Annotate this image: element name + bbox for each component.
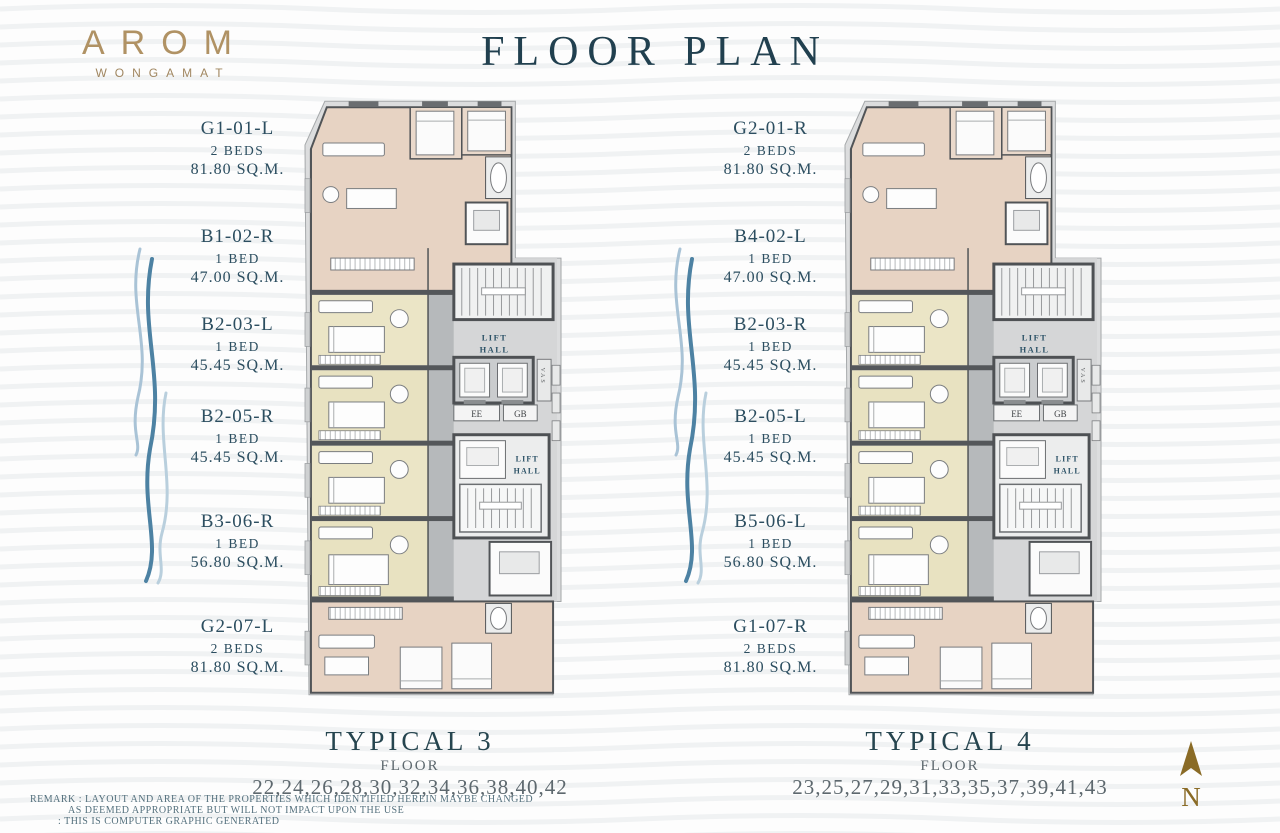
unit-area: 81.80 SQ.M. [683, 161, 858, 179]
unit-label-b2-05-r: B2-05-R 1 BED 45.45 SQ.M. [150, 406, 325, 467]
unit-beds: 1 BED [683, 339, 858, 355]
unit-label-b5-06-l: B5-06-L 1 BED 56.80 SQ.M. [683, 511, 858, 572]
unit-beds: 1 BED [150, 339, 325, 355]
unit-code: G1-01-L [150, 118, 325, 140]
unit-beds: 1 BED [683, 251, 858, 267]
plan-name: TYPICAL 3 [280, 726, 540, 757]
unit-area: 81.80 SQ.M. [150, 161, 325, 179]
unit-label-g2-07-l: G2-07-L 2 BEDS 81.80 SQ.M. [150, 616, 325, 677]
remark-line-1: REMARK : LAYOUT AND AREA OF THE PROPERTI… [30, 794, 533, 805]
unit-code: B2-03-L [150, 314, 325, 336]
north-arrow-icon [1176, 740, 1206, 780]
unit-beds: 1 BED [150, 536, 325, 552]
unit-label-g1-07-r: G1-07-R 2 BEDS 81.80 SQ.M. [683, 616, 858, 677]
unit-code: B1-02-R [150, 226, 325, 248]
unit-code: G1-07-R [683, 616, 858, 638]
unit-code: B2-03-R [683, 314, 858, 336]
remark-line-3: : THIS IS COMPUTER GRAPHIC GENERATED [58, 816, 533, 827]
unit-area: 56.80 SQ.M. [150, 554, 325, 572]
unit-area: 81.80 SQ.M. [683, 659, 858, 677]
north-letter: N [1174, 785, 1208, 809]
unit-beds: 1 BED [150, 251, 325, 267]
unit-area: 56.80 SQ.M. [683, 554, 858, 572]
unit-code: B2-05-L [683, 406, 858, 428]
brand-subtitle: WONGAMAT [72, 66, 248, 80]
unit-code: G2-07-L [150, 616, 325, 638]
remark-note: REMARK : LAYOUT AND AREA OF THE PROPERTI… [30, 794, 533, 827]
brand-logo: AROM WONGAMAT [72, 24, 248, 80]
unit-code: B4-02-L [683, 226, 858, 248]
floorplan-drawing-typical-4 [843, 97, 1103, 701]
unit-beds: 2 BEDS [683, 143, 858, 159]
north-compass: N [1174, 740, 1208, 809]
unit-beds: 1 BED [150, 431, 325, 447]
unit-beds: 1 BED [683, 431, 858, 447]
unit-beds: 2 BEDS [683, 641, 858, 657]
plan-name: TYPICAL 4 [820, 726, 1080, 757]
unit-label-g2-01-r: G2-01-R 2 BEDS 81.80 SQ.M. [683, 118, 858, 179]
unit-code: B3-06-R [150, 511, 325, 533]
floorplan-drawing-typical-3 [303, 97, 563, 701]
plan-floors: FLOOR 23,25,27,29,31,33,35,37,39,41,43 [770, 757, 1130, 800]
unit-code: B5-06-L [683, 511, 858, 533]
unit-area: 45.45 SQ.M. [683, 449, 858, 467]
unit-area: 81.80 SQ.M. [150, 659, 325, 677]
unit-beds: 1 BED [683, 536, 858, 552]
unit-label-g1-01-l: G1-01-L 2 BEDS 81.80 SQ.M. [150, 118, 325, 179]
unit-code: G2-01-R [683, 118, 858, 140]
unit-area: 47.00 SQ.M. [683, 269, 858, 287]
brand-name: AROM [72, 24, 248, 63]
floor-plan-page: LIFT HALL VAS [0, 0, 1280, 833]
unit-label-b2-03-r: B2-03-R 1 BED 45.45 SQ.M. [683, 314, 858, 375]
unit-area: 47.00 SQ.M. [150, 269, 325, 287]
unit-label-b2-03-l: B2-03-L 1 BED 45.45 SQ.M. [150, 314, 325, 375]
floors-word: FLOOR [920, 758, 979, 774]
unit-label-b4-02-l: B4-02-L 1 BED 47.00 SQ.M. [683, 226, 858, 287]
remark-line-2: AS DEEMED APPROPRIATE BUT WILL NOT IMPAC… [68, 805, 533, 816]
floors-word: FLOOR [380, 758, 439, 774]
page-title: FLOOR PLAN [455, 28, 855, 76]
unit-area: 45.45 SQ.M. [150, 357, 325, 375]
unit-area: 45.45 SQ.M. [150, 449, 325, 467]
unit-code: B2-05-R [150, 406, 325, 428]
floors-numbers: 23,25,27,29,31,33,35,37,39,41,43 [792, 775, 1108, 799]
unit-area: 45.45 SQ.M. [683, 357, 858, 375]
unit-label-b2-05-l: B2-05-L 1 BED 45.45 SQ.M. [683, 406, 858, 467]
unit-beds: 2 BEDS [150, 641, 325, 657]
unit-beds: 2 BEDS [150, 143, 325, 159]
unit-label-b1-02-r: B1-02-R 1 BED 47.00 SQ.M. [150, 226, 325, 287]
unit-label-b3-06-r: B3-06-R 1 BED 56.80 SQ.M. [150, 511, 325, 572]
